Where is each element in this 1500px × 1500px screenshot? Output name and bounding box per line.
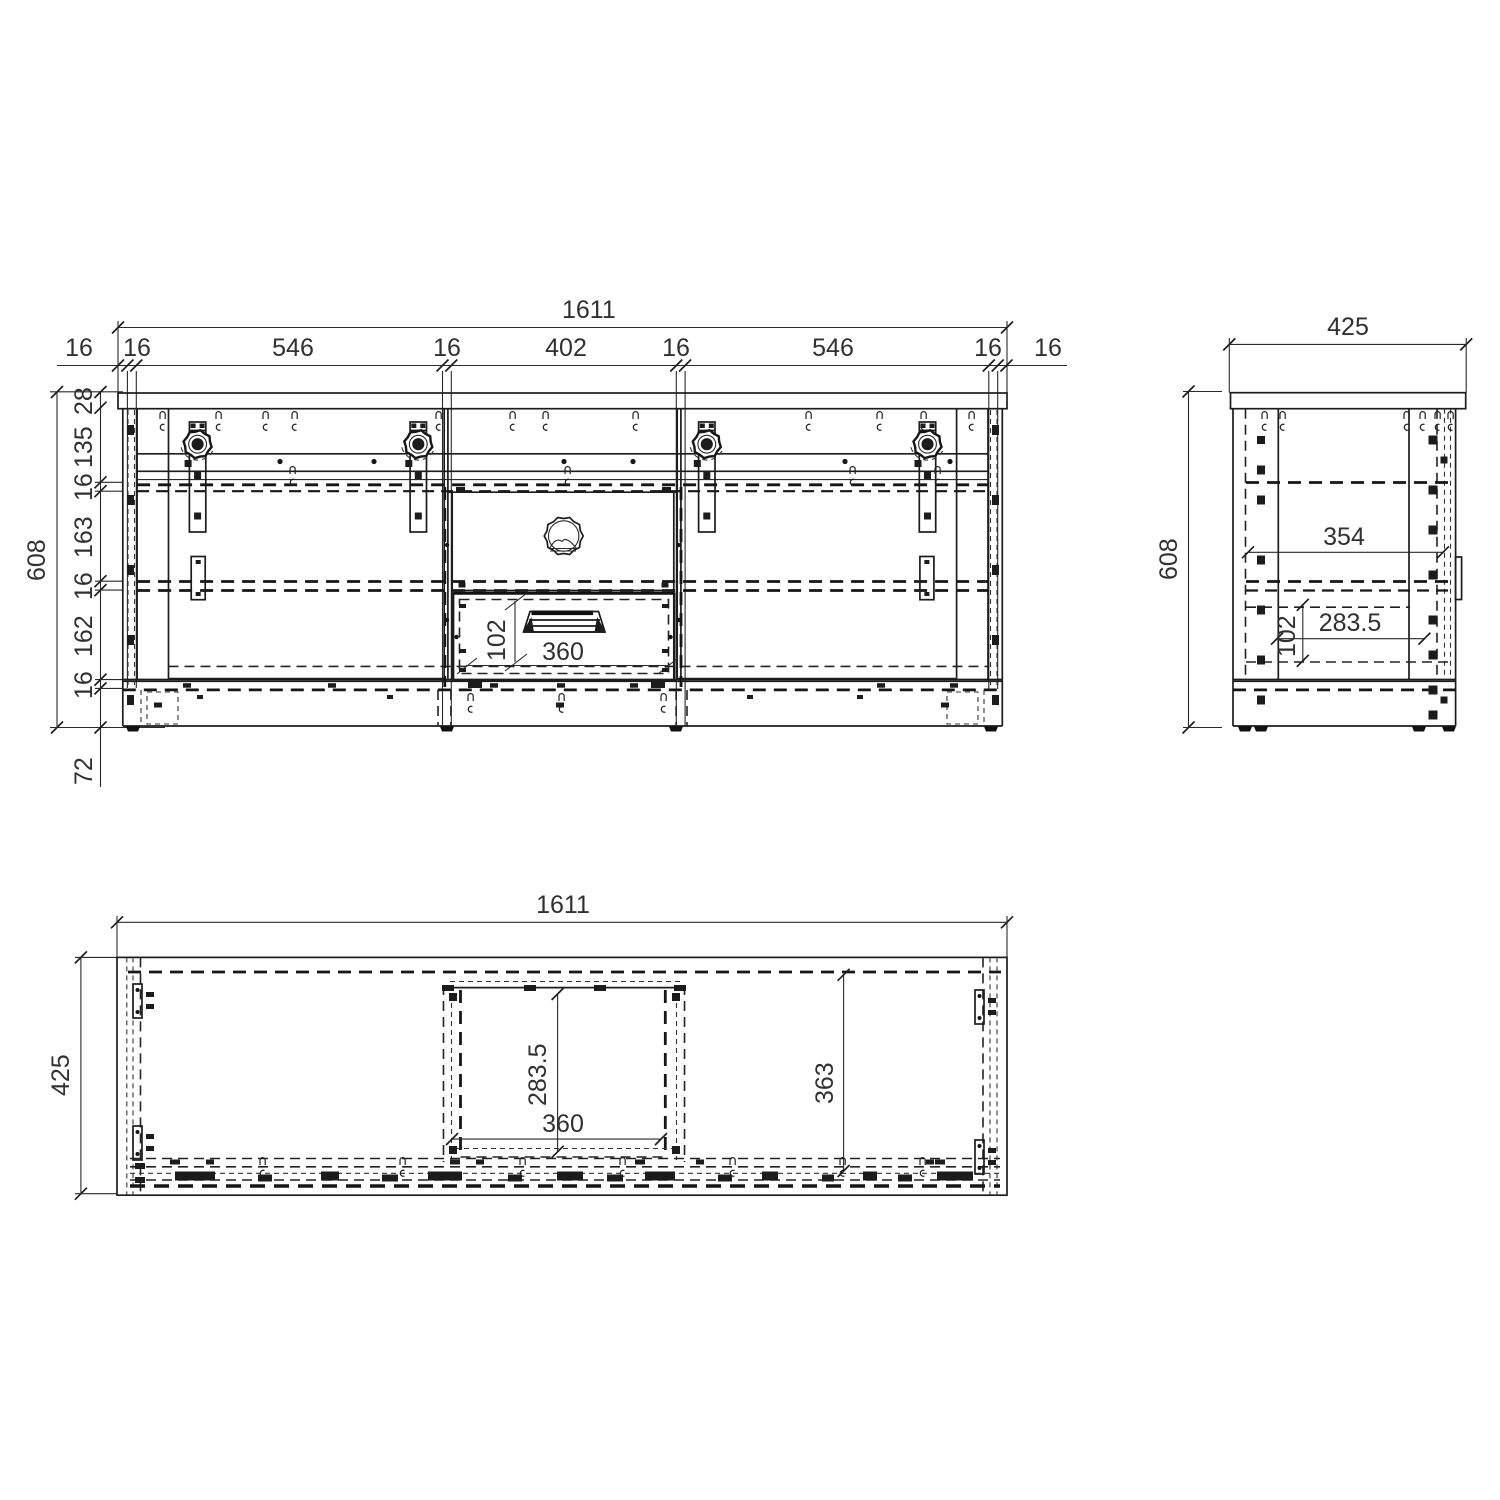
svg-text:16: 16 [65, 334, 93, 362]
svg-text:283.5: 283.5 [524, 1043, 552, 1106]
svg-text:546: 546 [272, 334, 314, 362]
svg-text:608: 608 [23, 539, 51, 581]
svg-text:546: 546 [812, 334, 854, 362]
svg-text:360: 360 [542, 1110, 584, 1138]
svg-text:163: 163 [70, 516, 98, 558]
svg-text:283.5: 283.5 [1319, 609, 1382, 637]
svg-text:363: 363 [811, 1062, 839, 1104]
svg-text:425: 425 [47, 1054, 75, 1096]
svg-text:16: 16 [974, 334, 1002, 362]
svg-text:135: 135 [70, 426, 98, 468]
svg-text:16: 16 [70, 473, 98, 501]
svg-text:162: 162 [70, 615, 98, 657]
svg-text:402: 402 [545, 334, 587, 362]
svg-text:102: 102 [1273, 615, 1301, 657]
svg-text:425: 425 [1327, 313, 1369, 341]
svg-text:16: 16 [662, 334, 690, 362]
svg-text:16: 16 [123, 334, 151, 362]
svg-text:1611: 1611 [536, 891, 590, 919]
svg-text:16: 16 [70, 572, 98, 600]
svg-text:16: 16 [433, 334, 461, 362]
svg-text:16: 16 [70, 671, 98, 699]
svg-text:102: 102 [483, 619, 511, 661]
svg-text:608: 608 [1155, 538, 1183, 580]
svg-text:16: 16 [1034, 334, 1062, 362]
svg-text:360: 360 [542, 638, 584, 666]
svg-text:72: 72 [70, 757, 98, 785]
svg-text:1611: 1611 [562, 296, 616, 324]
svg-text:28: 28 [70, 387, 98, 415]
svg-text:354: 354 [1323, 523, 1365, 551]
